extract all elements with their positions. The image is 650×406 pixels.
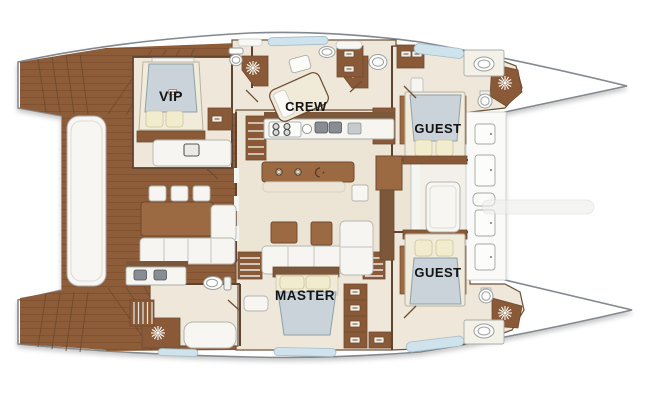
toilet-icon (479, 289, 493, 303)
cockpit-table (141, 202, 213, 236)
stairs-icon (246, 116, 266, 160)
vanity-seat (244, 296, 268, 311)
room-label-guest-bottom: GUEST (414, 265, 461, 280)
pillow (436, 140, 453, 156)
forward-seat (426, 182, 460, 232)
sink-icon (134, 270, 147, 280)
stairs-icon (238, 252, 262, 279)
ladder-icon (130, 300, 154, 326)
sink-icon (474, 57, 494, 71)
cooktop-burner-icon (275, 169, 283, 176)
pillow (146, 111, 163, 127)
pillow (436, 240, 453, 256)
cooktop-burner-icon (294, 169, 302, 176)
tv-icon (184, 144, 199, 156)
toilet-tank (229, 48, 243, 54)
lounger (184, 322, 236, 348)
appliance-icon (348, 123, 361, 134)
stool (193, 186, 210, 201)
pillow (166, 111, 183, 127)
bowsprit-ghost (482, 200, 594, 214)
sink-icon (474, 324, 494, 338)
drawer-single (369, 332, 391, 348)
deck-hatch-icon (475, 155, 495, 186)
room-label-crew: CREW (285, 99, 327, 114)
nav-cabinet (376, 156, 402, 190)
stern-bench (67, 116, 106, 286)
partition-wall (380, 190, 394, 260)
round-sink-icon (302, 124, 311, 133)
room-label-vip: VIP (159, 88, 183, 104)
stool (171, 186, 188, 201)
ottoman (311, 222, 332, 245)
guest-bed-foot (403, 156, 467, 164)
sink-icon (315, 122, 328, 133)
galley-cabinet (337, 46, 363, 77)
sink-icon (319, 47, 335, 58)
stool (149, 186, 166, 201)
salon-chaise (340, 221, 373, 275)
drawer-column (344, 284, 367, 348)
toilet-tank (224, 277, 231, 290)
pedestal-sink-icon (369, 55, 387, 70)
sink-icon (329, 122, 342, 133)
toilet-icon (230, 54, 242, 65)
room-label-guest-top: GUEST (414, 121, 461, 136)
room-label-master: MASTER (275, 288, 335, 303)
sink-icon (154, 270, 167, 280)
pillow (415, 240, 432, 256)
yacht-floorplan-canvas: VIP CREW GUEST GUEST MASTER (0, 0, 650, 406)
pillow (415, 140, 432, 156)
ottoman (271, 222, 297, 243)
toilet-icon (478, 94, 492, 108)
drawer-unit (352, 185, 368, 201)
floorplan-svg: VIP CREW GUEST GUEST MASTER (0, 0, 650, 406)
cockpit-sofa-corner (211, 205, 236, 241)
